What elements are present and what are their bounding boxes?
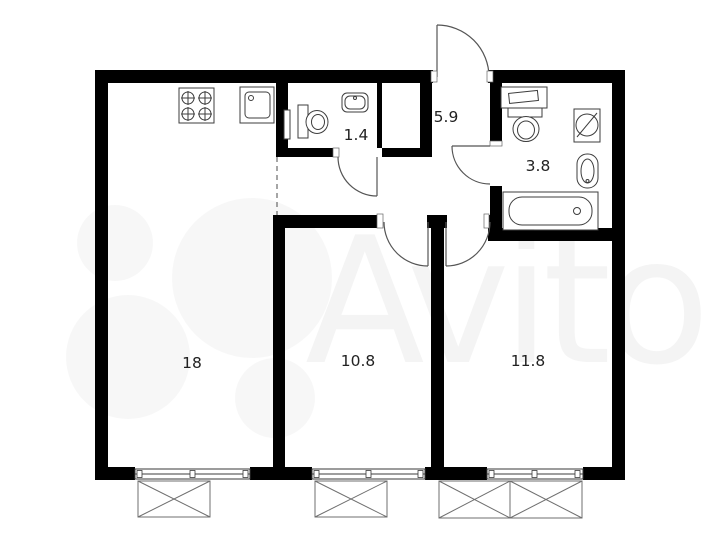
wall-top-left (95, 70, 433, 83)
window-sill-box (315, 481, 387, 517)
stove-four-burners-icon (179, 88, 214, 123)
bathroom-sink-icon (577, 154, 598, 188)
bathroom-toilet-icon (508, 108, 542, 142)
floor-plan: 18 10.8 11.8 5.9 1.4 3.8 Avito (0, 0, 720, 540)
bathroom-door (452, 146, 490, 184)
floor-plan-drawing: 18 10.8 11.8 5.9 1.4 3.8 Avito (0, 0, 720, 540)
room-middle-door (384, 222, 428, 266)
wall-bottom-3 (425, 467, 487, 480)
window-sill-box-double (439, 481, 582, 518)
kitchen-sink-icon (240, 87, 274, 123)
wall-corridor-bottom (276, 215, 382, 228)
window-room-middle (312, 469, 425, 517)
window-living-room (135, 469, 250, 517)
entrance-door (437, 25, 489, 77)
doors (338, 25, 490, 266)
room-label-middle: 10.8 (341, 352, 376, 370)
wall-right (612, 70, 625, 480)
room-label-wc: 1.4 (344, 126, 369, 144)
wall-bottom-1 (95, 467, 135, 480)
wall-wc-bottom-left (276, 148, 338, 157)
wall-bathroom-left-upper (490, 83, 502, 146)
bathroom-vanity-sink-icon (501, 87, 547, 108)
wall-room18-room108 (273, 215, 285, 467)
window-sill-box (138, 481, 210, 517)
wall-bottom-4 (583, 467, 625, 480)
room-right-door (446, 222, 490, 266)
room-label-bathroom: 3.8 (526, 157, 551, 175)
wall-hallway-left (420, 83, 432, 157)
room-label-right: 11.8 (511, 352, 546, 370)
washing-machine-icon (574, 109, 600, 142)
wall-left (95, 70, 108, 480)
room-label-living-kitchen: 18 (182, 354, 202, 372)
bathtub-icon (503, 192, 598, 230)
wall-wc-divider (377, 83, 382, 148)
wc-toilet-icon (284, 105, 328, 139)
wall-room108-room118 (431, 215, 444, 467)
wc-door (338, 157, 377, 196)
wall-bottom-2 (250, 467, 312, 480)
wc-sink-icon (342, 93, 368, 112)
windows (135, 469, 583, 518)
room-label-hallway: 5.9 (434, 108, 459, 126)
wall-top-right (488, 70, 625, 83)
